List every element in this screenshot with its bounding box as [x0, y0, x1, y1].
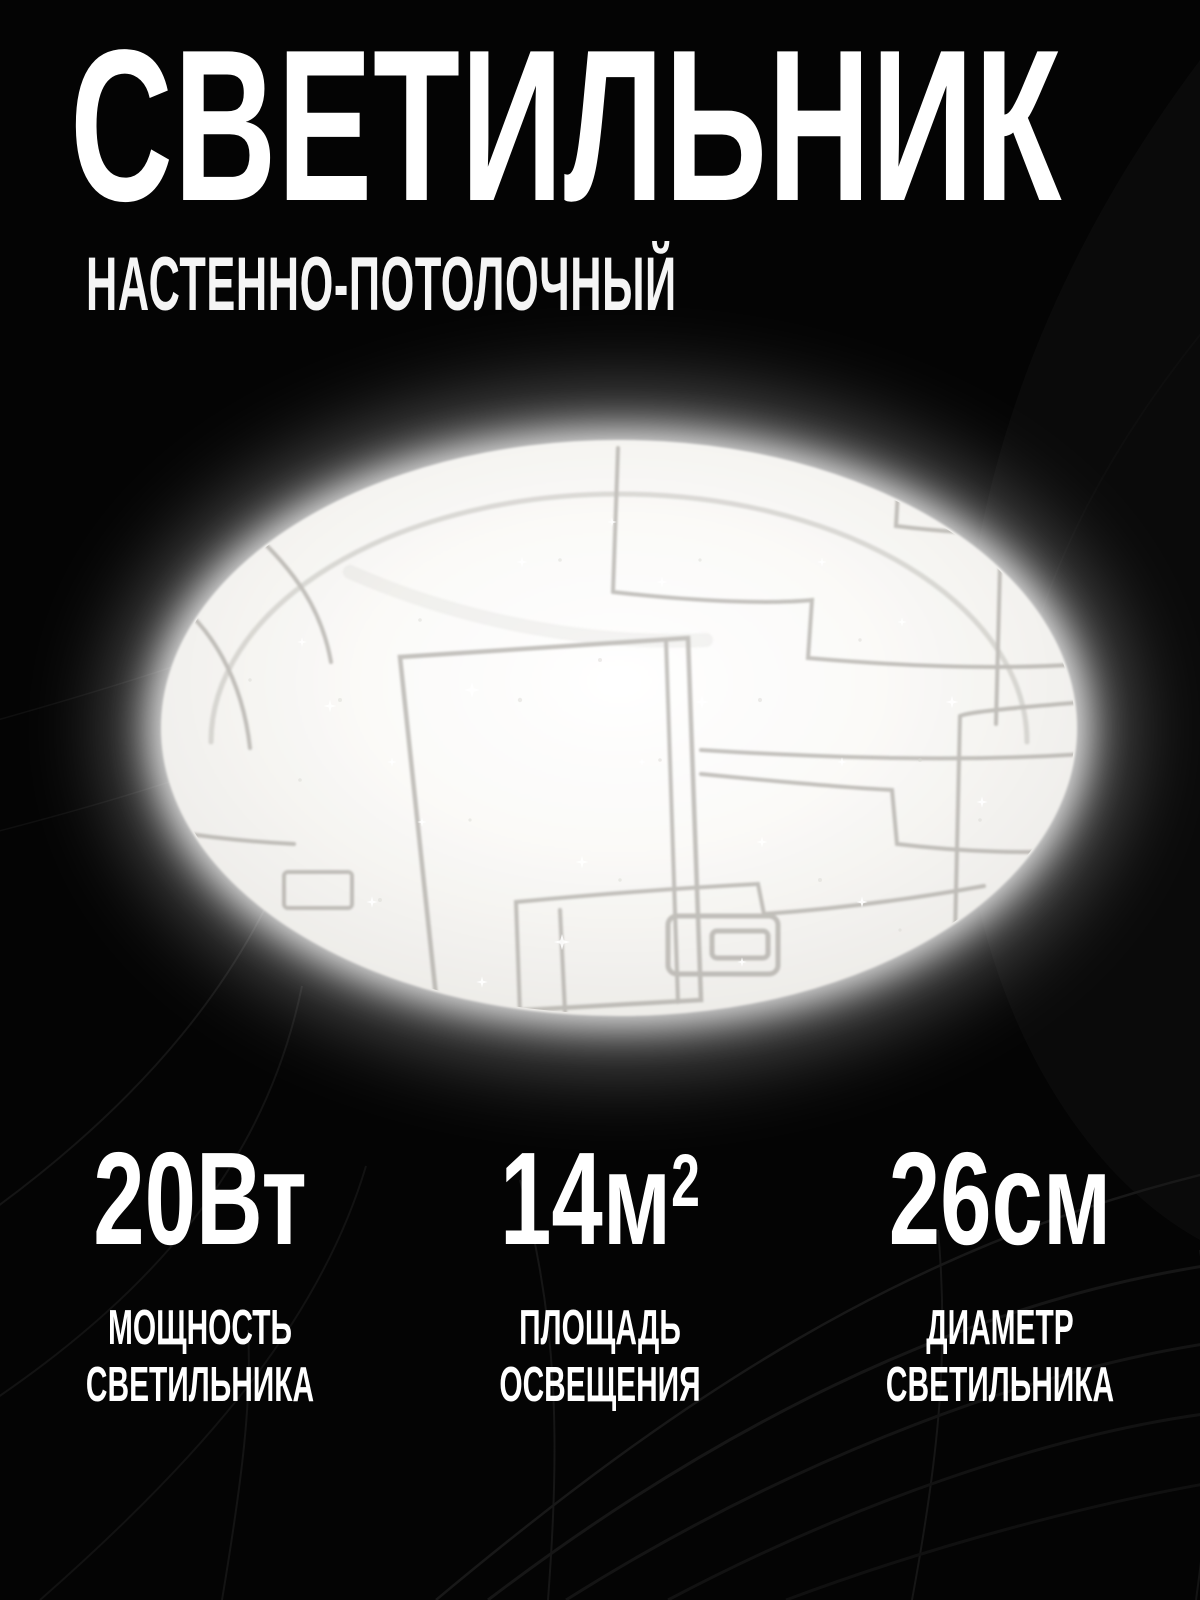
spec-label-line1: МОЩНОСТЬ — [78, 1300, 322, 1357]
spec-value-number: 20 — [93, 1125, 196, 1272]
spec-value-unit: м — [603, 1125, 671, 1272]
spec-value-unit: см — [992, 1125, 1112, 1272]
spec-power: 20Вт МОЩНОСТЬ СВЕТИЛЬНИКА — [0, 1133, 400, 1414]
specs-row: 20Вт МОЩНОСТЬ СВЕТИЛЬНИКА 14м2 ПЛОЩАДЬ О… — [0, 1133, 1200, 1414]
spec-value-number: 26 — [889, 1125, 992, 1272]
spec-label-line1: ДИАМЕТР — [878, 1300, 1122, 1357]
spec-value-sup: 2 — [671, 1139, 700, 1222]
spec-label: ДИАМЕТР СВЕТИЛЬНИКА — [800, 1300, 1200, 1414]
spec-label-line2: ОСВЕЩЕНИЯ — [478, 1357, 722, 1414]
product-banner: СВЕТИЛЬНИК НАСТЕННО-ПОТОЛОЧНЫЙ — [0, 0, 1200, 1600]
spec-value: 20Вт — [60, 1133, 340, 1265]
spec-value: 14м2 — [460, 1133, 740, 1265]
spec-diameter: 26см ДИАМЕТР СВЕТИЛЬНИКА — [800, 1133, 1200, 1414]
spec-label-line2: СВЕТИЛЬНИКА — [78, 1357, 322, 1414]
spec-value-number: 14 — [500, 1125, 603, 1272]
spec-label: ПЛОЩАДЬ ОСВЕЩЕНИЯ — [400, 1300, 800, 1414]
spec-value: 26см — [860, 1133, 1140, 1265]
spec-label-line1: ПЛОЩАДЬ — [478, 1300, 722, 1357]
spec-area: 14м2 ПЛОЩАДЬ ОСВЕЩЕНИЯ — [400, 1133, 800, 1414]
spec-label-line2: СВЕТИЛЬНИКА — [878, 1357, 1122, 1414]
spec-label: МОЩНОСТЬ СВЕТИЛЬНИКА — [0, 1300, 400, 1414]
spec-value-unit: Вт — [196, 1125, 307, 1272]
lamp-body — [161, 440, 1077, 1016]
